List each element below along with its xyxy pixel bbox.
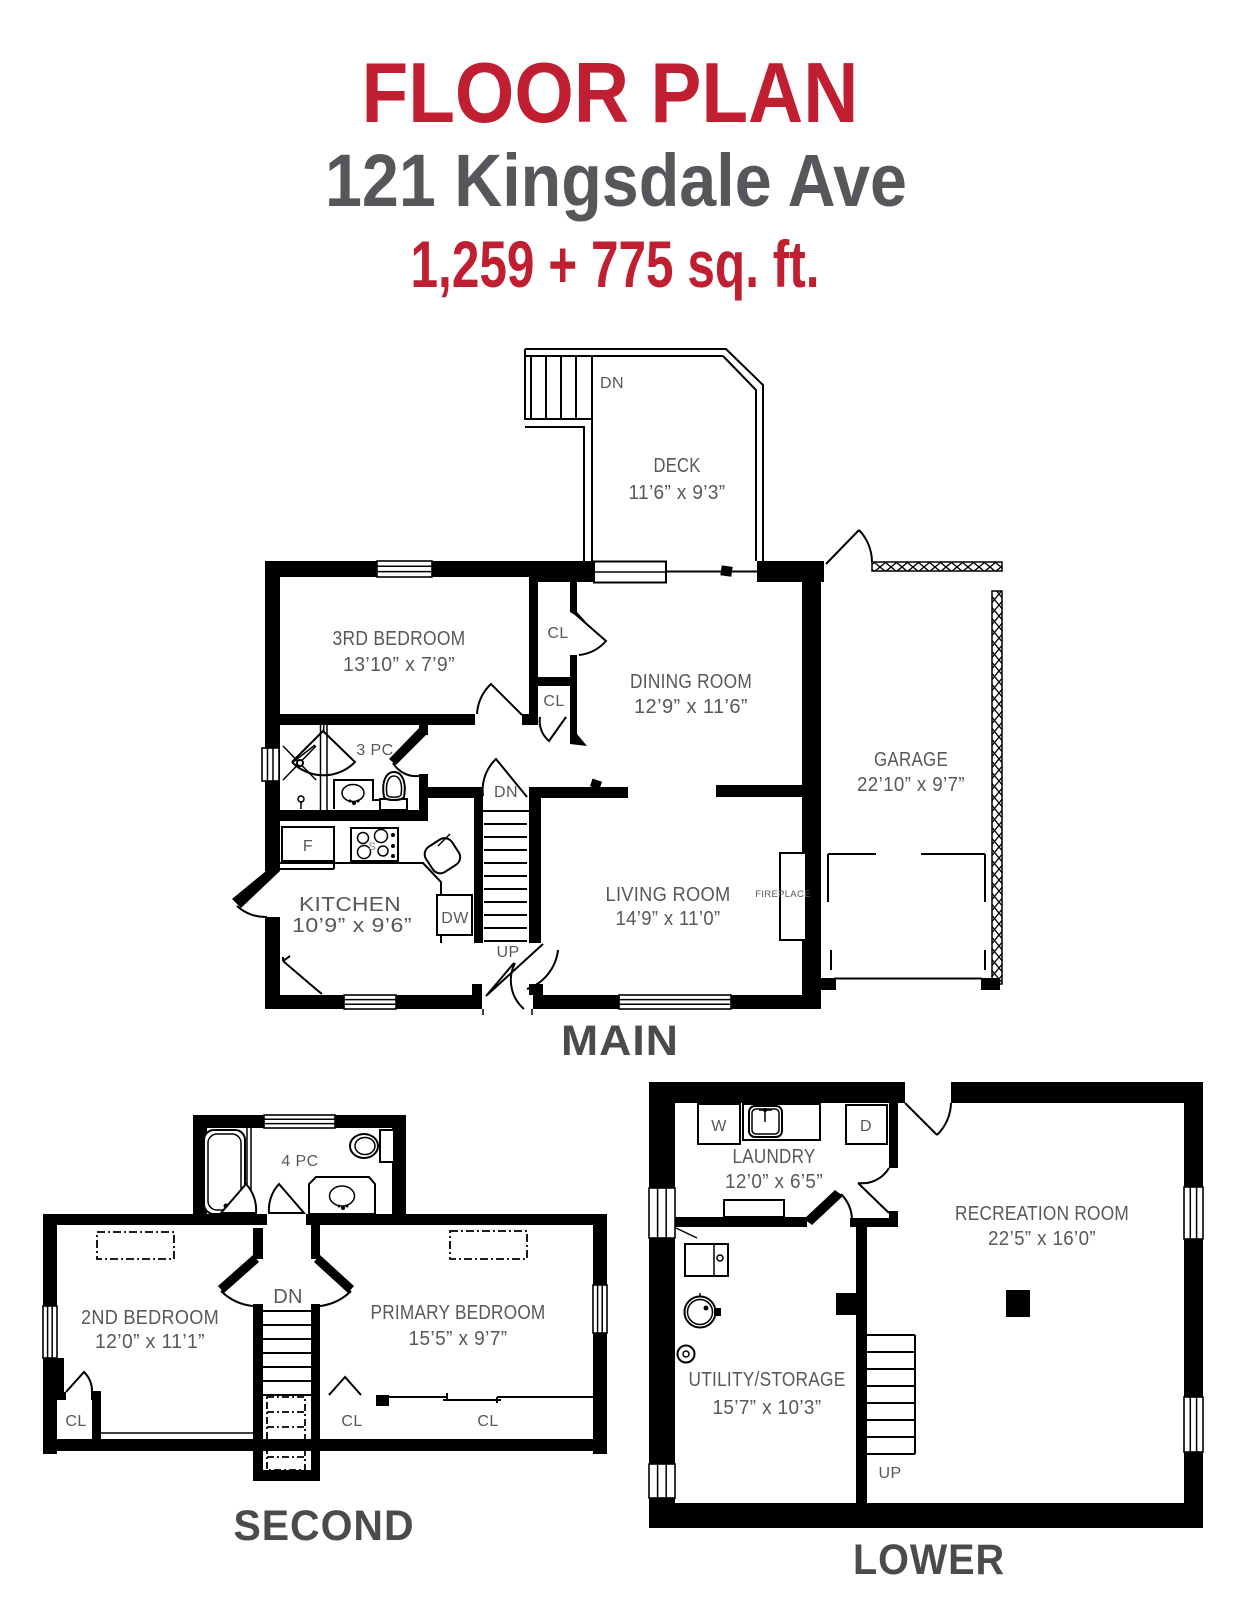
svg-text:CL: CL	[543, 693, 564, 710]
svg-text:15’7” x 10’3”: 15’7” x 10’3”	[713, 1397, 822, 1419]
svg-text:LIVING ROOM: LIVING ROOM	[606, 884, 731, 906]
svg-text:3 PC: 3 PC	[356, 742, 393, 759]
svg-text:121 Kingsdale Ave: 121 Kingsdale Ave	[325, 139, 907, 222]
svg-text:MAIN: MAIN	[561, 1017, 679, 1065]
svg-text:CL: CL	[477, 1413, 498, 1430]
svg-text:15’5” x 9’7”: 15’5” x 9’7”	[409, 1328, 508, 1350]
svg-text:CL: CL	[65, 1413, 86, 1430]
svg-text:10’9” x 9’6”: 10’9” x 9’6”	[292, 915, 412, 937]
svg-text:3RD BEDROOM: 3RD BEDROOM	[333, 628, 466, 650]
svg-text:CL: CL	[547, 625, 568, 642]
svg-text:DN: DN	[494, 784, 518, 801]
svg-text:F: F	[303, 838, 313, 855]
svg-text:12’0” x 11’1”: 12’0” x 11’1”	[95, 1331, 205, 1353]
svg-text:UP: UP	[496, 944, 519, 961]
svg-text:D: D	[860, 1118, 872, 1135]
svg-text:UTILITY/STORAGE: UTILITY/STORAGE	[689, 1369, 846, 1391]
svg-text:RECREATION ROOM: RECREATION ROOM	[955, 1203, 1129, 1225]
svg-text:12’9” x 11’6”: 12’9” x 11’6”	[634, 696, 748, 718]
svg-text:DW: DW	[441, 910, 469, 927]
svg-text:GARAGE: GARAGE	[874, 749, 948, 771]
svg-text:11’6” x 9’3”: 11’6” x 9’3”	[629, 482, 726, 504]
svg-text:FIREPLACE: FIREPLACE	[755, 889, 811, 900]
svg-text:CL: CL	[341, 1413, 362, 1430]
svg-text:S: S	[368, 841, 375, 853]
svg-text:22’5” x 16’0”: 22’5” x 16’0”	[988, 1228, 1096, 1250]
svg-text:DN: DN	[273, 1286, 303, 1308]
svg-text:4 PC: 4 PC	[281, 1153, 318, 1170]
svg-text:FLOOR PLAN: FLOOR PLAN	[362, 46, 859, 141]
svg-text:KITCHEN: KITCHEN	[299, 894, 401, 916]
svg-text:14’9” x 11’0”: 14’9” x 11’0”	[616, 908, 721, 930]
svg-text:LAUNDRY: LAUNDRY	[733, 1146, 816, 1168]
svg-text:DN: DN	[600, 375, 624, 392]
svg-text:LOWER: LOWER	[853, 1536, 1005, 1584]
svg-text:1,259 + 775 sq. ft.: 1,259 + 775 sq. ft.	[411, 227, 820, 301]
svg-text:12’0” x 6’5”: 12’0” x 6’5”	[725, 1171, 823, 1193]
svg-text:UP: UP	[878, 1465, 901, 1482]
svg-text:W: W	[711, 1118, 727, 1135]
svg-text:PRIMARY BEDROOM: PRIMARY BEDROOM	[371, 1302, 546, 1324]
svg-text:SECOND: SECOND	[234, 1502, 415, 1550]
svg-text:DINING ROOM: DINING ROOM	[630, 671, 752, 693]
svg-text:2ND BEDROOM: 2ND BEDROOM	[81, 1307, 219, 1329]
svg-text:DECK: DECK	[654, 455, 701, 477]
svg-text:22’10” x 9’7”: 22’10” x 9’7”	[857, 774, 965, 796]
svg-text:13’10” x 7’9”: 13’10” x 7’9”	[343, 654, 455, 676]
